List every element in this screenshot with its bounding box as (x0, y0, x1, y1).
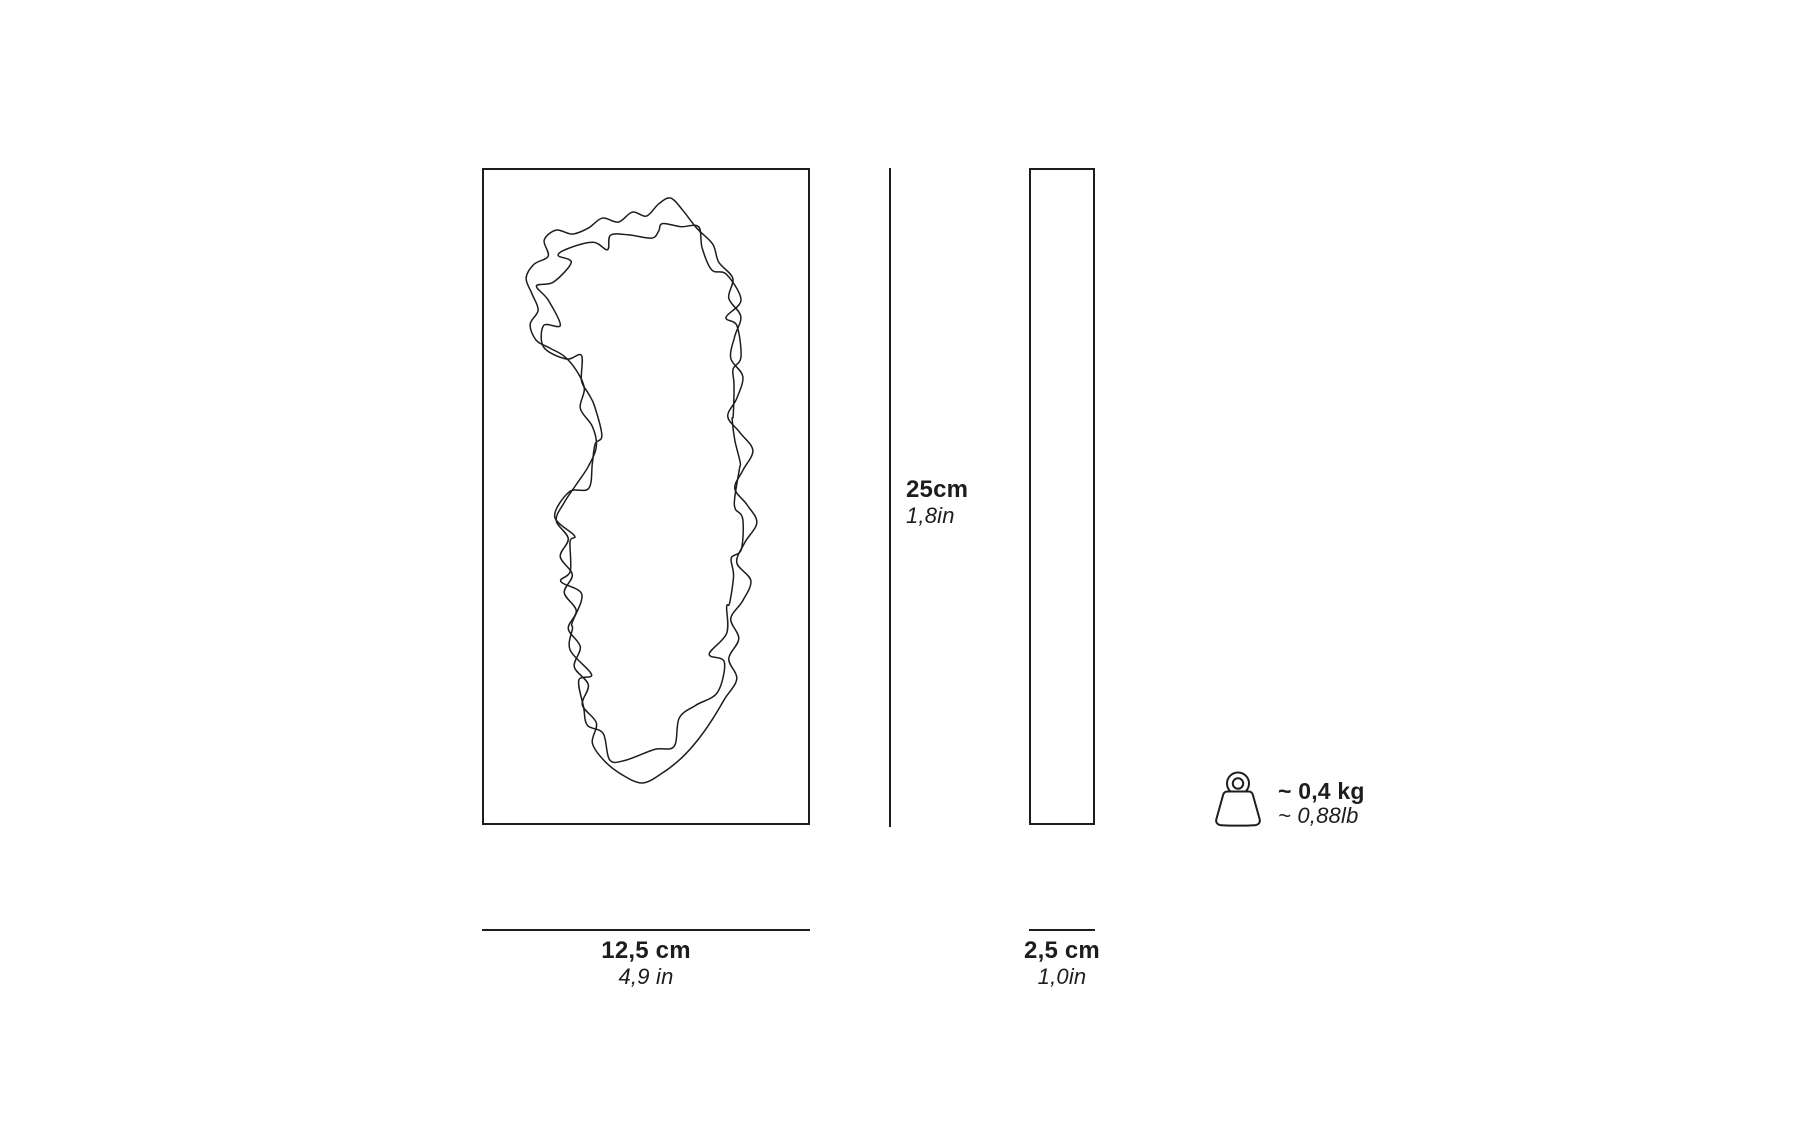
weight-metric-label: ~ 0,4 kg (1278, 779, 1365, 803)
weight-spec: ~ 0,4 kg ~ 0,88lb (1206, 770, 1365, 832)
weight-imperial-label: ~ 0,88lb (1278, 804, 1365, 827)
artwork-outline-drawing (484, 170, 808, 823)
side-width-metric-label: 2,5 cm (989, 938, 1135, 963)
height-dimension-label: 25cm 1,8in (906, 477, 968, 528)
weight-icon (1206, 770, 1270, 832)
height-dimension-line (889, 168, 891, 827)
front-view-rect (482, 168, 810, 825)
front-width-dimension-line (482, 929, 810, 931)
dimension-diagram: 25cm 1,8in ~ 0,4 kg ~ 0,88lb 12,5 cm 4,9… (0, 0, 1814, 1134)
weight-labels: ~ 0,4 kg ~ 0,88lb (1278, 770, 1365, 827)
front-width-metric-label: 12,5 cm (482, 938, 810, 963)
height-metric-label: 25cm (906, 477, 968, 502)
side-view-rect (1029, 168, 1095, 825)
side-width-dimension-line (1029, 929, 1095, 931)
front-width-dimension-label: 12,5 cm 4,9 in (482, 938, 810, 989)
height-imperial-label: 1,8in (906, 504, 968, 528)
side-width-dimension-label: 2,5 cm 1,0in (989, 938, 1135, 989)
front-width-imperial-label: 4,9 in (482, 965, 810, 989)
side-width-imperial-label: 1,0in (989, 965, 1135, 989)
